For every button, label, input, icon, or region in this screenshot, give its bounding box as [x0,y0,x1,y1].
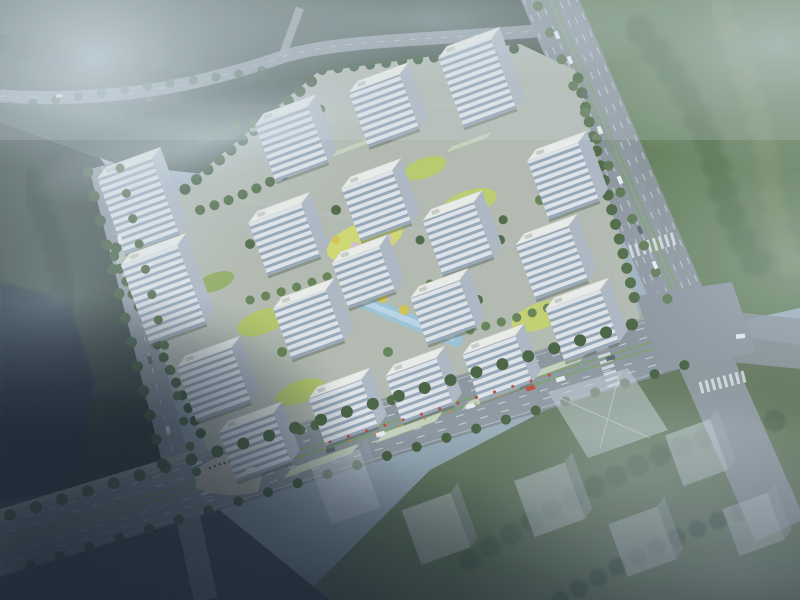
rendering-canvas [0,0,800,600]
aerial-rendering [0,0,800,600]
blue-cast [0,0,800,600]
fog-layer [0,0,800,600]
